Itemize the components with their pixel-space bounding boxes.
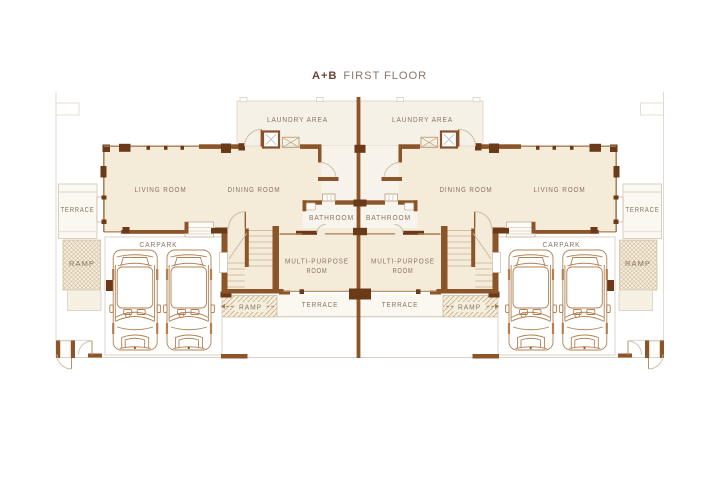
svg-text:A+B FIRST FLOOR: A+B FIRST FLOOR — [312, 70, 427, 82]
svg-text:ROOM: ROOM — [393, 266, 414, 275]
svg-text:TERRACE: TERRACE — [61, 205, 95, 214]
svg-text:RAMP: RAMP — [625, 259, 651, 268]
svg-text:CARPARK: CARPARK — [140, 240, 178, 249]
svg-text:TERRACE: TERRACE — [302, 300, 339, 309]
svg-text:BATHROOM: BATHROOM — [309, 213, 354, 222]
svg-text:LAUNDRY AREA: LAUNDRY AREA — [267, 115, 328, 124]
svg-text:CARPARK: CARPARK — [543, 240, 581, 249]
svg-text:BATHROOM: BATHROOM — [366, 213, 411, 222]
svg-text:MULTI-PURPOSE: MULTI-PURPOSE — [371, 257, 435, 266]
svg-text:LAUNDRY AREA: LAUNDRY AREA — [392, 115, 453, 124]
svg-text:DINING ROOM: DINING ROOM — [228, 185, 281, 194]
svg-text:TERRACE: TERRACE — [626, 205, 660, 214]
svg-text:DINING ROOM: DINING ROOM — [440, 185, 493, 194]
svg-text:RAMP: RAMP — [69, 259, 95, 268]
svg-text:RAMP: RAMP — [239, 303, 262, 312]
svg-text:LIVING ROOM: LIVING ROOM — [534, 185, 586, 194]
svg-text:TERRACE: TERRACE — [382, 300, 419, 309]
svg-text:ROOM: ROOM — [307, 266, 328, 275]
svg-text:RAMP: RAMP — [458, 303, 481, 312]
svg-text:LIVING ROOM: LIVING ROOM — [135, 185, 187, 194]
svg-text:MULTI-PURPOSE: MULTI-PURPOSE — [285, 257, 349, 266]
